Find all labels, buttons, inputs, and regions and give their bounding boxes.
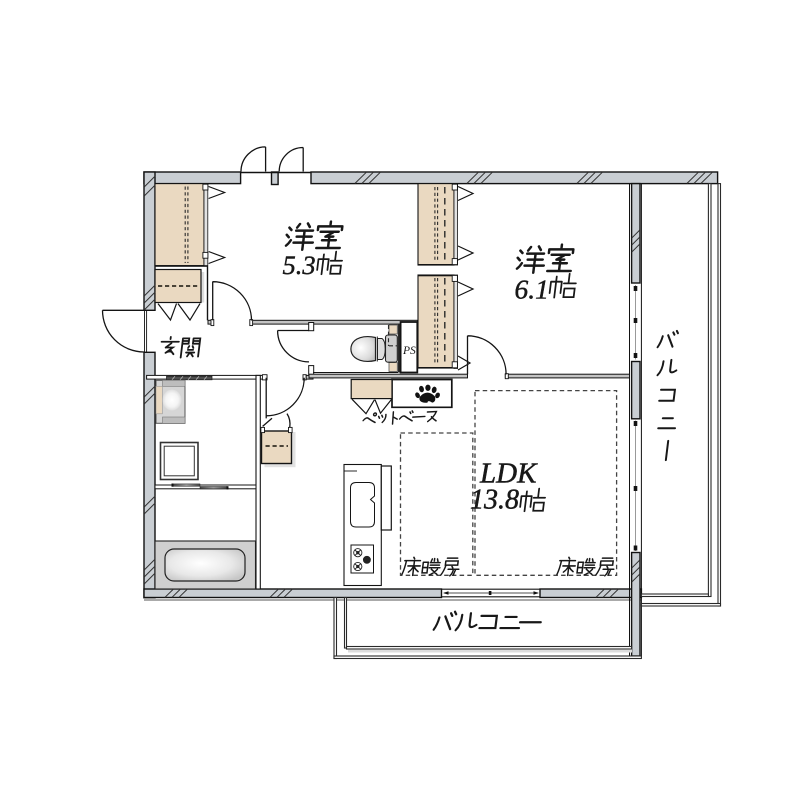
svg-text:13.8: 13.8 [470,485,519,516]
svg-text:PS: PS [402,345,416,357]
svg-text:5.3: 5.3 [283,250,316,280]
svg-text:6.1: 6.1 [515,274,549,305]
